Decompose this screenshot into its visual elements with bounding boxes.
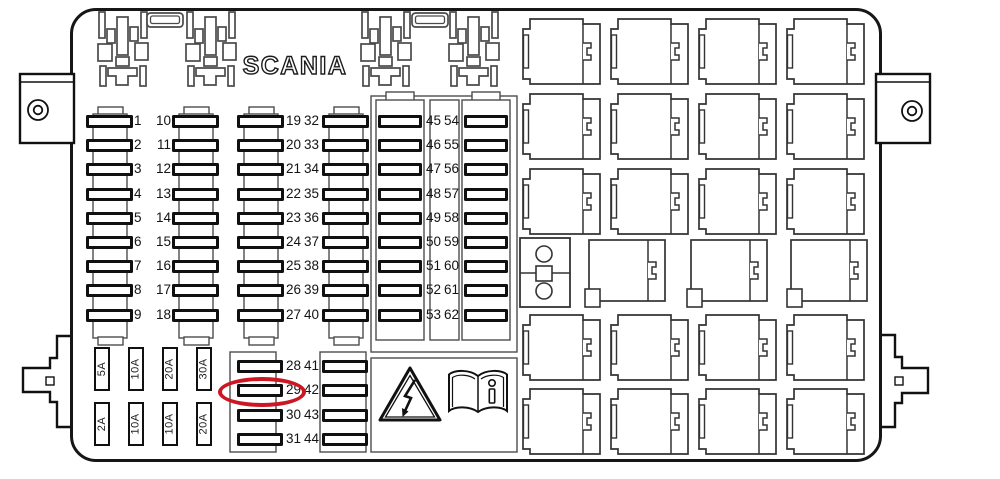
fuse-58 (464, 212, 508, 225)
fuse-55 (464, 139, 508, 152)
fuse-4 (86, 188, 133, 201)
fuse-label-row: 2639 (286, 282, 319, 298)
fuse-label-row: 312 (134, 161, 171, 177)
fuse-label: 56 (444, 162, 459, 176)
fuse-label-row: 4857 (426, 186, 459, 202)
fuse-label: 21 (286, 162, 301, 176)
fuse-15 (172, 236, 219, 249)
fuse-label-row: 5362 (426, 307, 459, 323)
fuse-43 (322, 409, 368, 422)
fuse-40 (322, 309, 369, 322)
relay-grid (520, 19, 867, 454)
fuse-label: 26 (286, 283, 301, 297)
spare-fuse-2A: 2A (94, 402, 110, 446)
fuse-label: 52 (426, 283, 441, 297)
fuse-label: 9 (134, 308, 142, 322)
fuse-label: 51 (426, 259, 441, 273)
fuse-30 (237, 409, 283, 422)
fuse-34 (322, 163, 369, 176)
fuse-label: 31 (286, 432, 301, 446)
fuse-label: 49 (426, 211, 441, 225)
fuse-label: 4 (134, 187, 142, 201)
fuse-label: 7 (134, 259, 142, 273)
fuse-label-row: 4958 (426, 210, 459, 226)
fuse-32 (322, 115, 369, 128)
spare-fuse-label: 20A (164, 358, 176, 379)
fuse-label: 53 (426, 308, 441, 322)
fuse-label-row: 4756 (426, 161, 459, 177)
fuse-label: 59 (444, 235, 459, 249)
fuse-16 (172, 260, 219, 273)
fuse-46 (378, 139, 422, 152)
fuse-label: 37 (304, 235, 319, 249)
fuse-41 (322, 360, 368, 373)
fuse-6 (86, 236, 133, 249)
scania-logo: SCANIA (243, 52, 348, 80)
fuse-21 (237, 163, 284, 176)
fuse-42 (322, 384, 368, 397)
fuse-label: 22 (286, 187, 301, 201)
fuse-25 (237, 260, 284, 273)
fuse-label: 27 (286, 308, 301, 322)
fuse-label-row: 3043 (286, 407, 319, 423)
fuse-8 (86, 284, 133, 297)
fuse-47 (378, 163, 422, 176)
fuse-label: 58 (444, 211, 459, 225)
fuse-label: 16 (156, 259, 171, 273)
spare-fuse-label: 20A (198, 413, 210, 434)
fuse-label-row: 2033 (286, 137, 319, 153)
fuse-17 (172, 284, 219, 297)
fuse-52 (378, 284, 422, 297)
fuse-39 (322, 284, 369, 297)
fuse-7 (86, 260, 133, 273)
fuse-5 (86, 212, 133, 225)
spare-fuse-label: 10A (164, 413, 176, 434)
fuse-51 (378, 260, 422, 273)
fuse-label-row: 918 (134, 307, 171, 323)
fuse-54 (464, 115, 508, 128)
fuse-label-row: 2336 (286, 210, 319, 226)
fuse-label-row: 2538 (286, 258, 319, 274)
fuse-35 (322, 188, 369, 201)
fuse-label: 60 (444, 259, 459, 273)
fuse-22 (237, 188, 284, 201)
fuse-label-row: 110 (134, 113, 171, 129)
fuse-label: 25 (286, 259, 301, 273)
spare-fuse-label: 30A (198, 358, 210, 379)
fuse-26 (237, 284, 284, 297)
spare-fuse-20A: 20A (162, 347, 178, 391)
fuse-label: 62 (444, 308, 459, 322)
fuse-label: 32 (304, 114, 319, 128)
fuse-label: 30 (286, 408, 301, 422)
fuse-53 (378, 309, 422, 322)
scania-fuse-box-diagram: SCANIA (0, 0, 1000, 479)
fuse-label: 33 (304, 138, 319, 152)
fuse-label: 10 (156, 114, 171, 128)
spare-fuse-5A: 5A (94, 347, 110, 391)
fuse-label: 20 (286, 138, 301, 152)
fuse-label-row: 716 (134, 258, 171, 274)
spare-fuse-label: 2A (96, 417, 108, 431)
fuse-19 (237, 115, 284, 128)
fuse-50 (378, 236, 422, 249)
fuse-label: 55 (444, 138, 459, 152)
diode-holder-socket (520, 238, 570, 307)
fuse-label: 50 (426, 235, 441, 249)
fuse-label-row: 5059 (426, 234, 459, 250)
fuse-37 (322, 236, 369, 249)
fuse-label: 36 (304, 211, 319, 225)
fuse-label-row: 4655 (426, 137, 459, 153)
fuse-label: 15 (156, 235, 171, 249)
fuse-45 (378, 115, 422, 128)
fuse-24 (237, 236, 284, 249)
fuse-12 (172, 163, 219, 176)
spare-fuse-10A: 10A (128, 347, 144, 391)
fuse-label: 6 (134, 235, 142, 249)
fuse-1 (86, 115, 133, 128)
fuse-label: 2 (134, 138, 142, 152)
relay-socket (523, 19, 867, 454)
fuse-60 (464, 260, 508, 273)
fuse-28 (237, 360, 283, 373)
fuse-label-row: 1932 (286, 113, 319, 129)
mounting-bracket-right (876, 74, 930, 143)
fuse-label: 38 (304, 259, 319, 273)
fuse-2 (86, 139, 133, 152)
fuse-label-row: 2235 (286, 186, 319, 202)
fuse-label: 11 (157, 138, 171, 152)
fuse-48 (378, 188, 422, 201)
fuse-label: 17 (156, 283, 171, 297)
fuse-61 (464, 284, 508, 297)
fuse-label: 1 (134, 114, 142, 128)
fuse-33 (322, 139, 369, 152)
fuse-38 (322, 260, 369, 273)
fuse-label: 5 (134, 211, 142, 225)
fuse-label-row: 2841 (286, 358, 319, 374)
fuse-label: 34 (304, 162, 319, 176)
fuse-label-row: 413 (134, 186, 171, 202)
spare-fuse-10A: 10A (162, 402, 178, 446)
spare-fuse-30A: 30A (196, 347, 212, 391)
fuse-20 (237, 139, 284, 152)
fuse-label-row: 514 (134, 210, 171, 226)
fuse-label: 45 (426, 114, 441, 128)
fuse-label: 46 (426, 138, 441, 152)
fuse-label-row: 2134 (286, 161, 319, 177)
fuse-label-row: 2740 (286, 307, 319, 323)
fuse-label: 35 (304, 187, 319, 201)
fuse-31 (237, 433, 283, 446)
fuse-label-row: 211 (134, 137, 171, 153)
fuse-label: 14 (156, 211, 171, 225)
owners-manual-icon (449, 371, 507, 412)
fuse-label: 41 (304, 359, 319, 373)
fuse-label: 57 (444, 187, 459, 201)
fuse-label: 44 (304, 432, 319, 446)
fuse-label-row: 5261 (426, 282, 459, 298)
fuse-49 (378, 212, 422, 225)
fuse-23 (237, 212, 284, 225)
fuse-13 (172, 188, 219, 201)
highlight-ring (218, 377, 306, 407)
fuse-label: 13 (156, 187, 171, 201)
fuse-label: 47 (426, 162, 441, 176)
fuse-10 (172, 115, 219, 128)
fuse-label: 3 (134, 162, 142, 176)
fuse-62 (464, 309, 508, 322)
fuse-59 (464, 236, 508, 249)
fuse-label: 19 (286, 114, 301, 128)
mounting-tab-bottom-right (882, 335, 928, 427)
fuse-label: 48 (426, 187, 441, 201)
fuse-label: 39 (304, 283, 319, 297)
fuse-label: 54 (444, 114, 459, 128)
fuse-label: 40 (304, 308, 319, 322)
fuse-label: 43 (304, 408, 319, 422)
fuse-36 (322, 212, 369, 225)
fuse-44 (322, 433, 368, 446)
fuse-3 (86, 163, 133, 176)
fuse-label: 42 (304, 383, 319, 397)
fuse-label-row: 817 (134, 282, 171, 298)
fuse-label-row: 3144 (286, 431, 319, 447)
spare-fuse-label: 10A (130, 413, 142, 434)
fuse-57 (464, 188, 508, 201)
spare-fuse-label: 5A (96, 362, 108, 376)
mounting-tab-bottom-left (23, 336, 70, 427)
fuse-label-row: 615 (134, 234, 171, 250)
fuse-11 (172, 139, 219, 152)
fuse-18 (172, 309, 219, 322)
fuse-27 (237, 309, 284, 322)
spare-fuse-10A: 10A (128, 402, 144, 446)
fuse-label: 24 (286, 235, 301, 249)
fuse-label: 28 (286, 359, 301, 373)
fuse-label: 18 (156, 308, 171, 322)
spare-fuse-20A: 20A (196, 402, 212, 446)
fuse-label-row: 5160 (426, 258, 459, 274)
fuse-label: 8 (134, 283, 142, 297)
mounting-bracket-left (20, 74, 74, 143)
fuse-label: 23 (286, 211, 301, 225)
fuse-14 (172, 212, 219, 225)
fuse-9 (86, 309, 133, 322)
fuse-56 (464, 163, 508, 176)
fuse-label: 12 (156, 162, 171, 176)
fuse-label: 61 (444, 283, 459, 297)
fuse-label-row: 2437 (286, 234, 319, 250)
fuse-label-row: 4554 (426, 113, 459, 129)
spare-fuse-label: 10A (130, 358, 142, 379)
